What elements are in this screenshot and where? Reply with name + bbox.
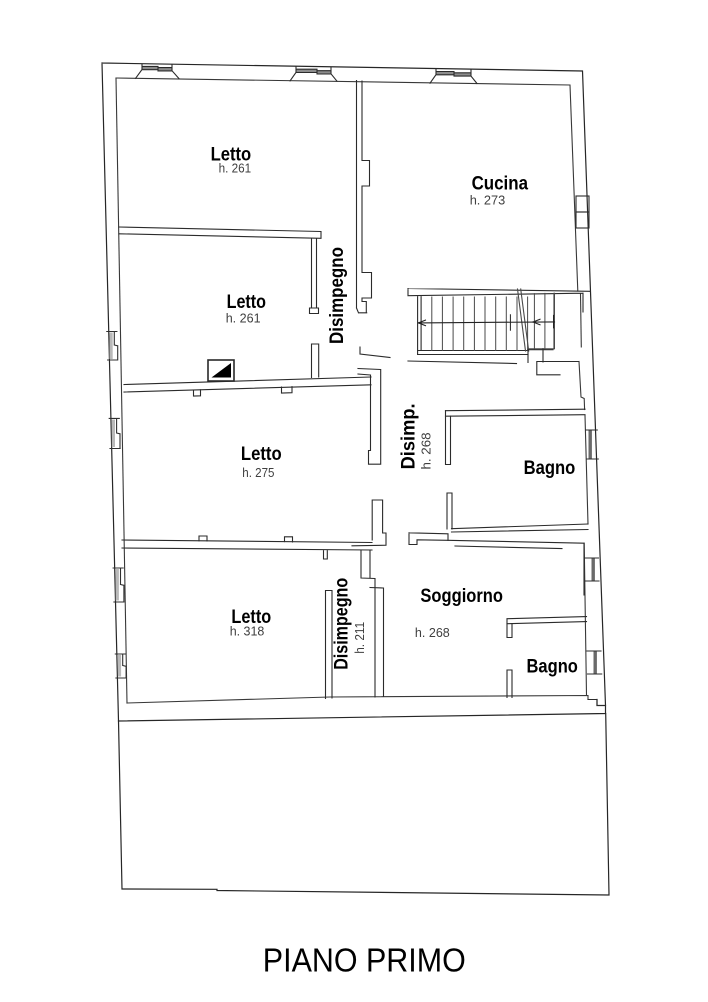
- svg-text:h. 273: h. 273: [470, 192, 506, 207]
- svg-text:h. 261: h. 261: [226, 310, 261, 325]
- svg-text:h. 261: h. 261: [219, 161, 252, 176]
- svg-text:h. 275: h. 275: [242, 465, 274, 480]
- svg-text:Cucina: Cucina: [472, 173, 529, 195]
- svg-text:Bagno: Bagno: [524, 457, 576, 479]
- svg-text:Bagno: Bagno: [527, 655, 578, 677]
- svg-text:Letto: Letto: [241, 443, 282, 465]
- svg-text:h. 318: h. 318: [230, 624, 265, 639]
- svg-text:PIANO PRIMO: PIANO PRIMO: [263, 942, 466, 979]
- svg-text:h. 268: h. 268: [415, 625, 450, 640]
- svg-text:h. 211: h. 211: [352, 622, 367, 654]
- svg-text:h. 268: h. 268: [419, 433, 434, 470]
- svg-text:Soggiorno: Soggiorno: [420, 585, 503, 607]
- svg-text:Disimpegno: Disimpegno: [331, 578, 353, 670]
- svg-text:Disimpegno: Disimpegno: [326, 247, 348, 344]
- svg-text:Disimp.: Disimp.: [397, 403, 419, 469]
